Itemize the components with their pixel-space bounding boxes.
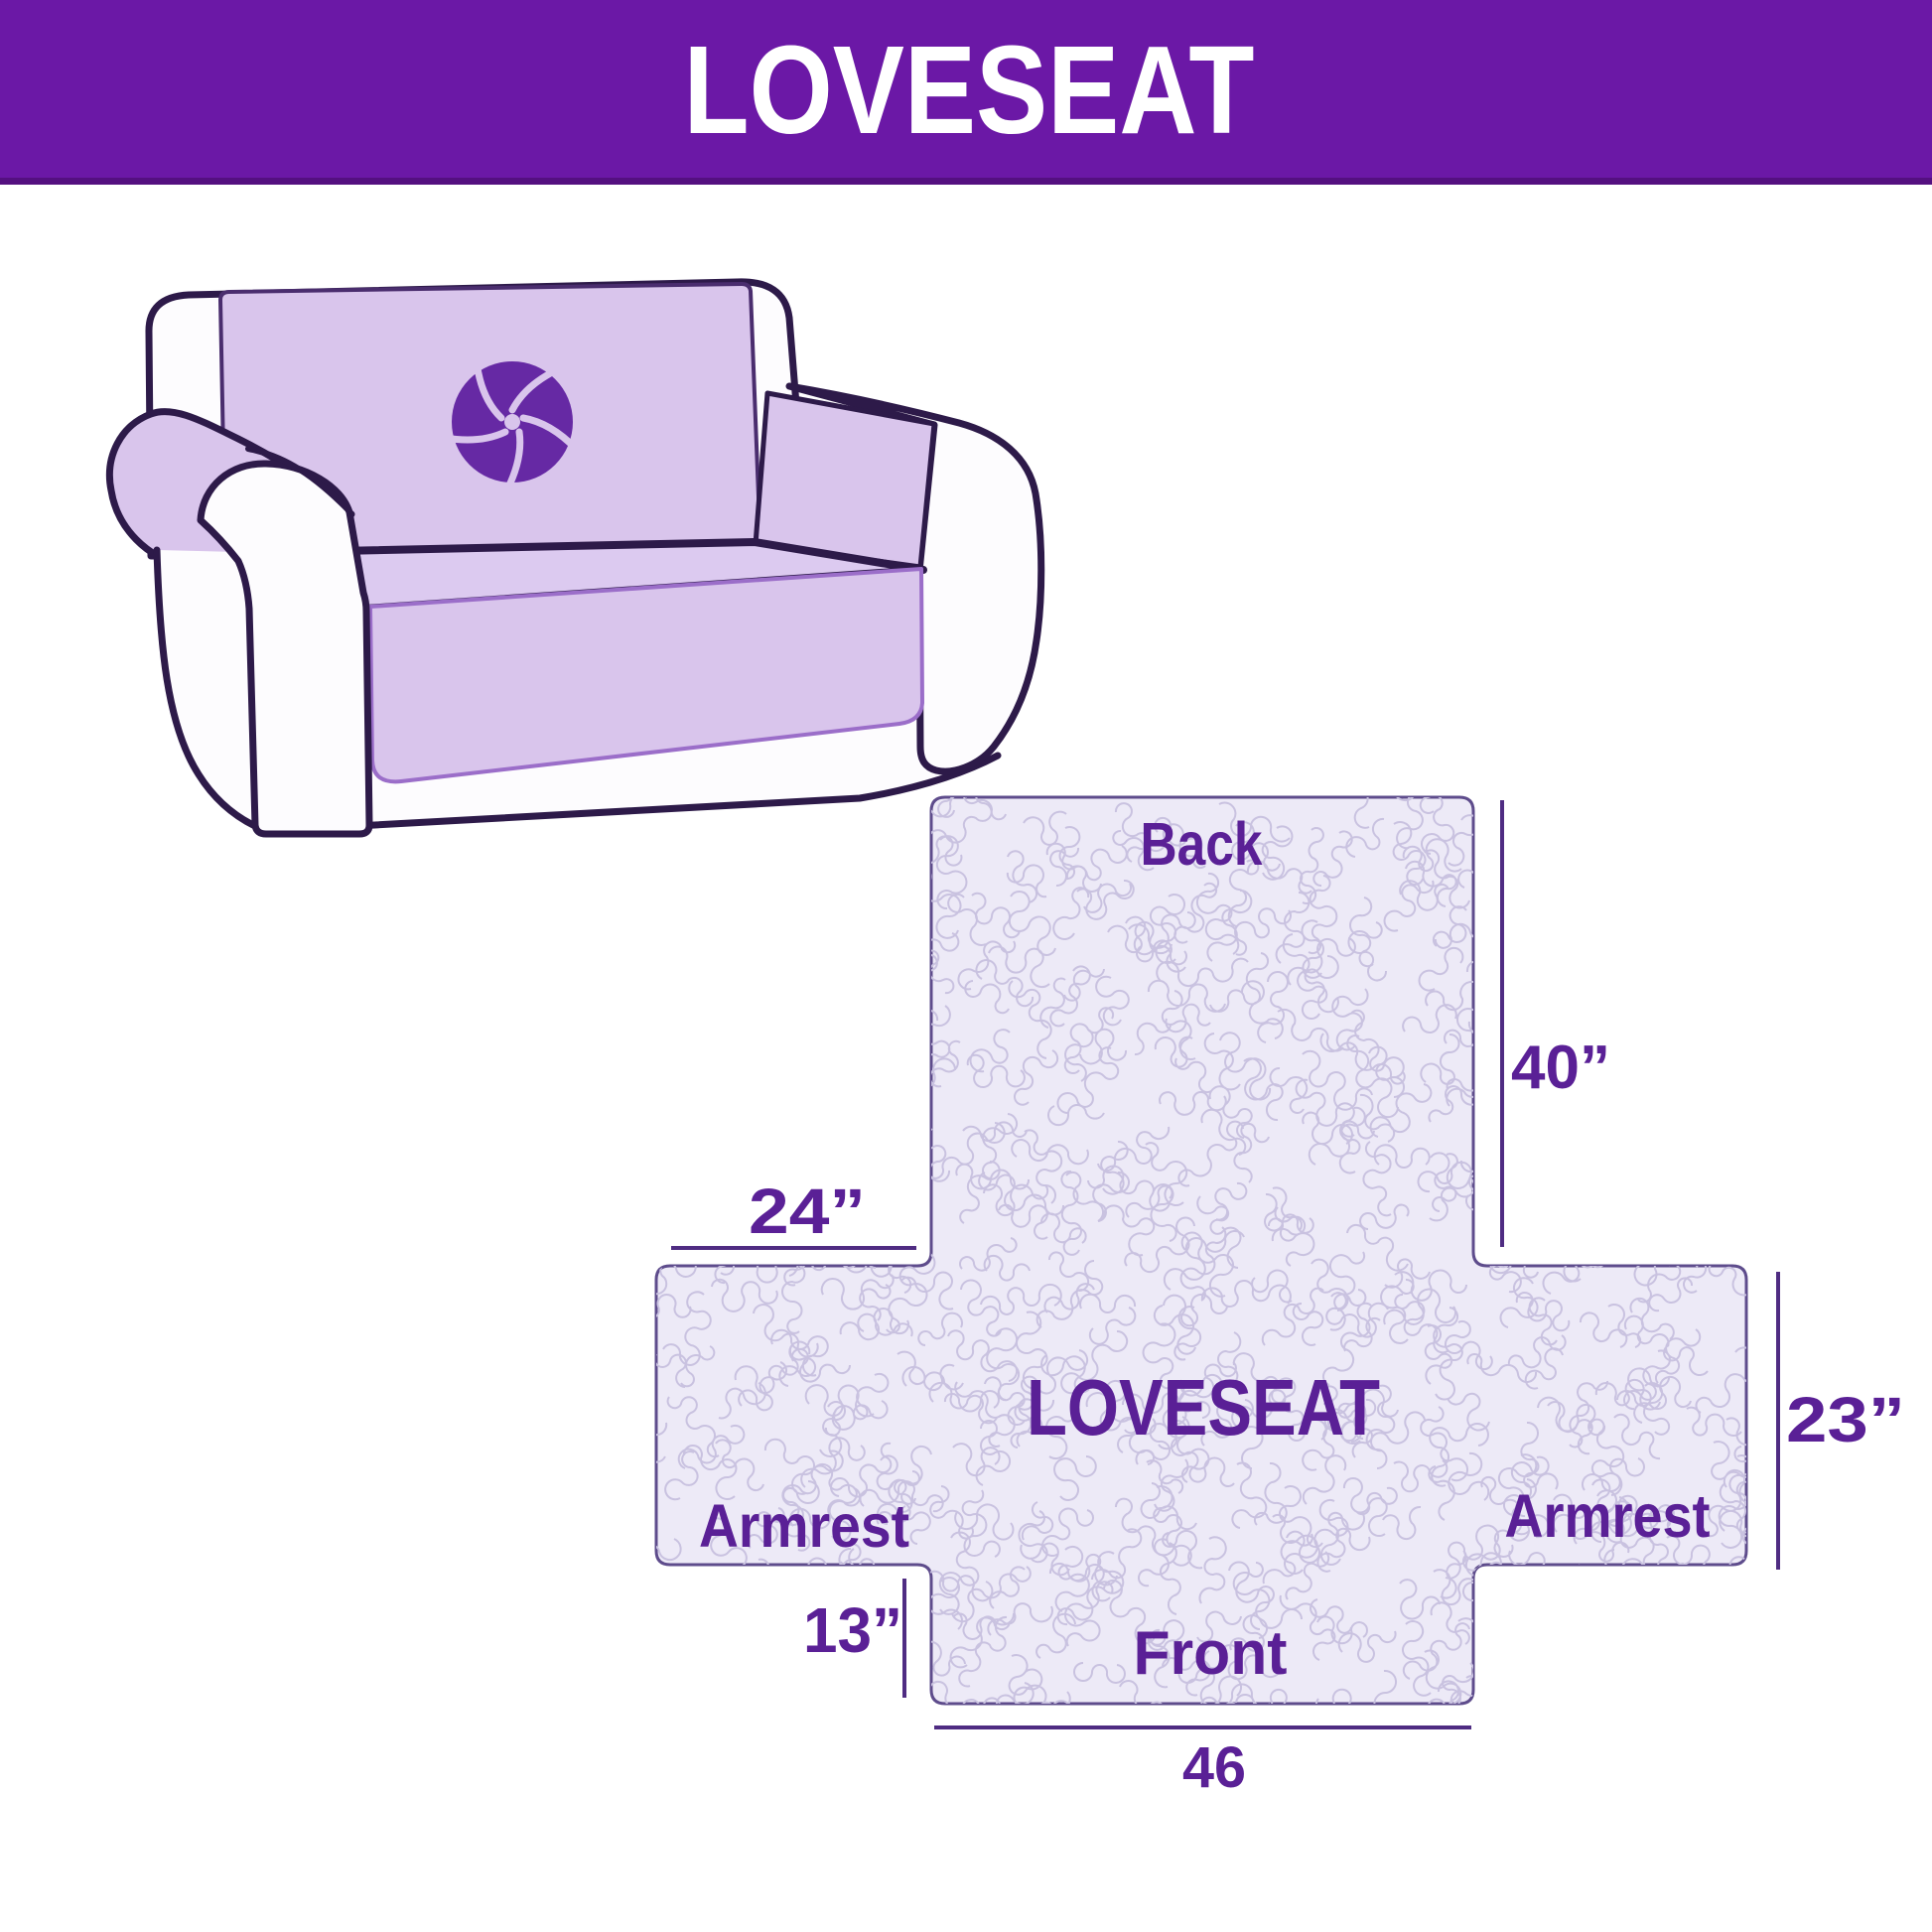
svg-text:Front: Front [1134,1619,1288,1688]
svg-text:Armrest: Armrest [1505,1482,1711,1550]
svg-text:24”: 24” [749,1175,866,1247]
svg-text:40”: 40” [1511,1034,1610,1102]
svg-text:LOVESEAT: LOVESEAT [1027,1363,1380,1451]
svg-text:46: 46 [1182,1735,1246,1800]
svg-text:LOVESEAT: LOVESEAT [684,20,1255,160]
svg-text:Armrest: Armrest [699,1492,909,1560]
svg-text:23”: 23” [1786,1384,1905,1455]
svg-text:Back: Back [1141,810,1263,878]
svg-text:13”: 13” [803,1594,902,1666]
